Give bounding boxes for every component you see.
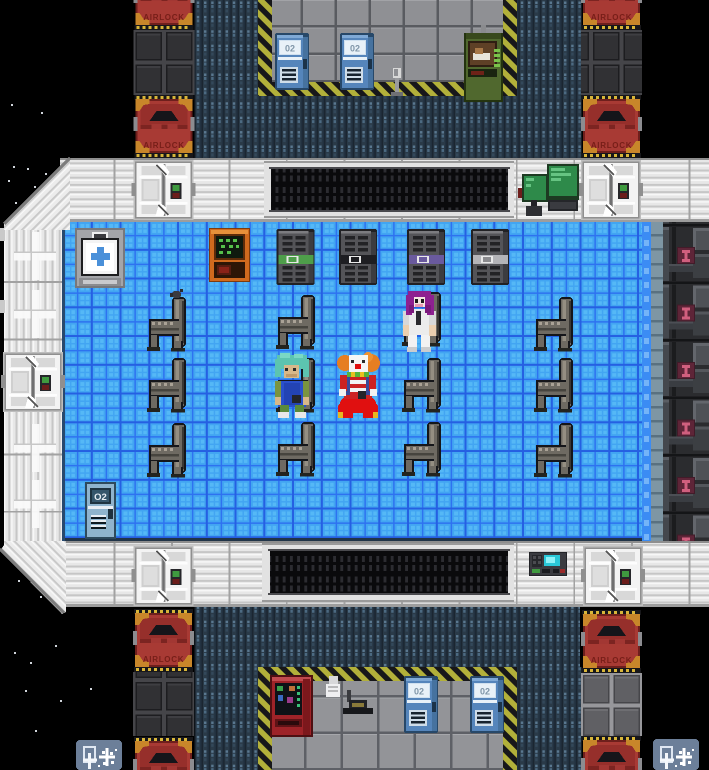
svg-text:O2: O2 — [94, 492, 107, 503]
